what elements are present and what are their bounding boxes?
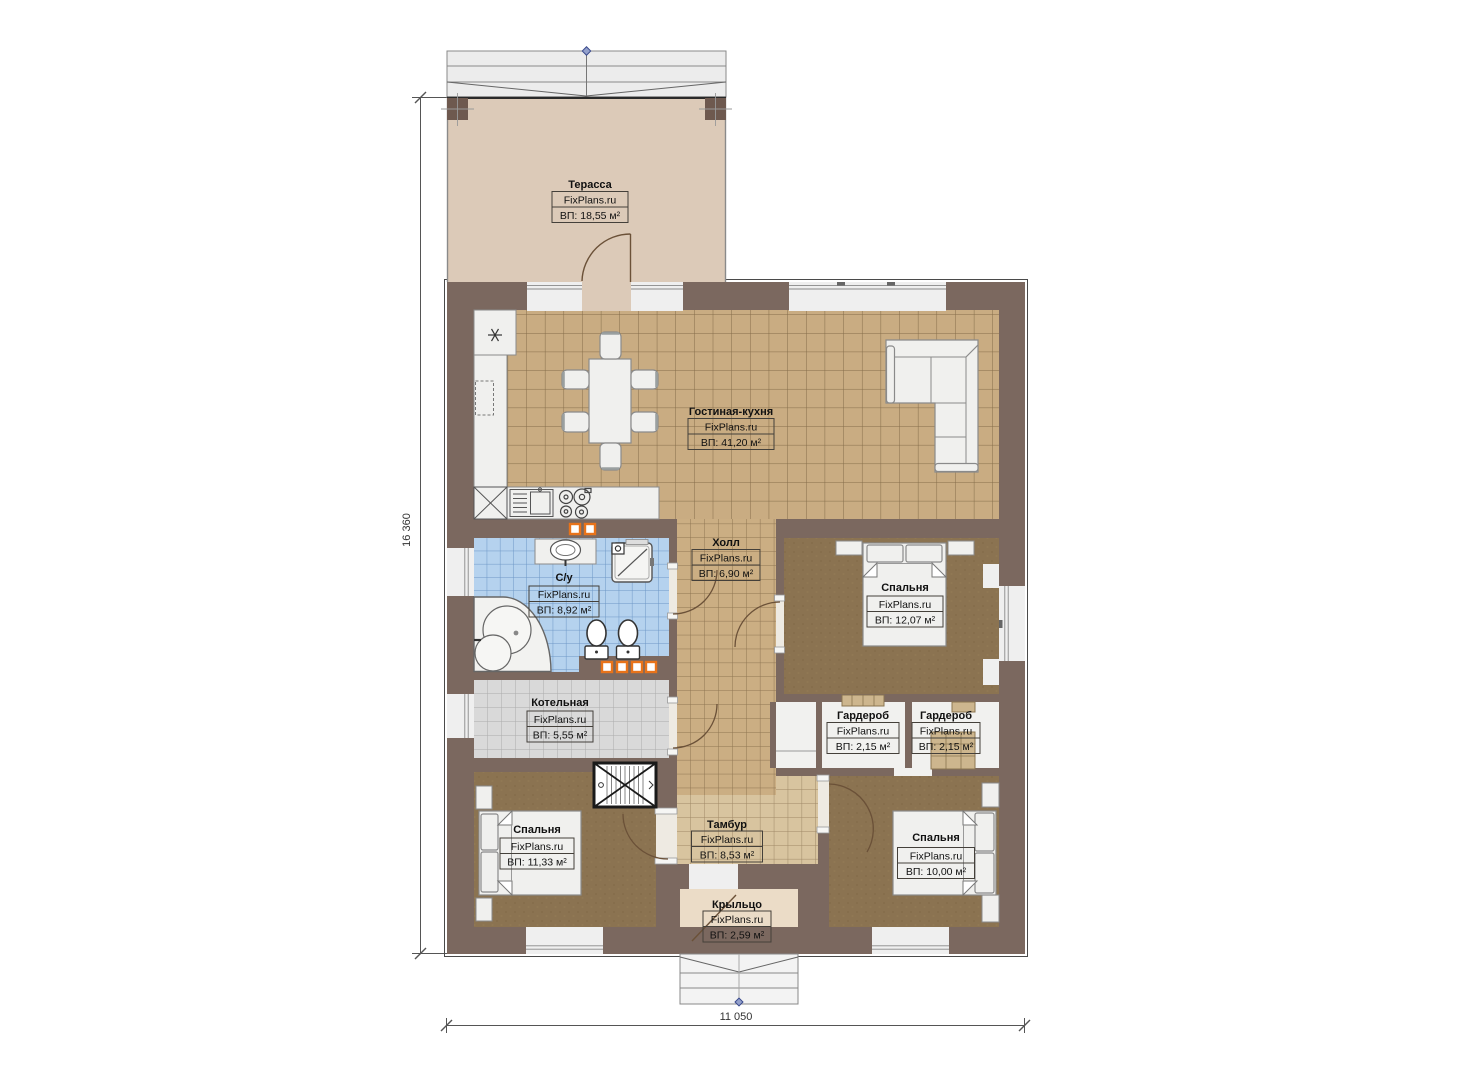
svg-text:ВП: 8,92 м²: ВП: 8,92 м² <box>537 605 592 617</box>
svg-text:FixPlans.ru: FixPlans.ru <box>920 726 973 738</box>
svg-text:ВП: 2,15 м²: ВП: 2,15 м² <box>919 741 974 753</box>
svg-text:ВП: 11,33 м²: ВП: 11,33 м² <box>507 857 567 869</box>
svg-text:Крыльцо: Крыльцо <box>712 899 762 911</box>
svg-text:16 360: 16 360 <box>401 513 413 547</box>
svg-text:Котельная: Котельная <box>531 697 589 709</box>
svg-text:FixPlans.ru: FixPlans.ru <box>538 589 591 601</box>
svg-text:ВП: 2,15 м²: ВП: 2,15 м² <box>836 741 891 753</box>
svg-text:FixPlans.ru: FixPlans.ru <box>711 914 764 926</box>
svg-text:FixPlans.ru: FixPlans.ru <box>700 553 753 565</box>
svg-text:Спальня: Спальня <box>912 832 960 844</box>
svg-text:ВП: 2,59 м²: ВП: 2,59 м² <box>710 930 765 942</box>
svg-text:FixPlans.ru: FixPlans.ru <box>534 714 587 726</box>
svg-text:С/у: С/у <box>555 572 573 584</box>
svg-text:Спальня: Спальня <box>513 824 561 836</box>
svg-text:FixPlans.ru: FixPlans.ru <box>564 195 617 207</box>
svg-text:ВП: 12,07 м²: ВП: 12,07 м² <box>875 615 936 627</box>
svg-text:11 050: 11 050 <box>720 1011 753 1023</box>
svg-text:FixPlans.ru: FixPlans.ru <box>837 726 890 738</box>
svg-text:ВП: 5,55 м²: ВП: 5,55 м² <box>533 730 588 742</box>
svg-text:FixPlans.ru: FixPlans.ru <box>701 834 754 846</box>
svg-text:FixPlans.ru: FixPlans.ru <box>511 841 564 853</box>
svg-text:ВП: 10,00 м²: ВП: 10,00 м² <box>906 866 967 878</box>
svg-text:ВП: 18,55 м²: ВП: 18,55 м² <box>560 210 621 222</box>
svg-text:ВП: 8,53 м²: ВП: 8,53 м² <box>700 850 755 862</box>
svg-text:Терасса: Терасса <box>568 179 612 191</box>
svg-text:FixPlans.ru: FixPlans.ru <box>910 851 963 863</box>
svg-text:ВП: 41,20 м²: ВП: 41,20 м² <box>701 437 762 449</box>
svg-text:FixPlans.ru: FixPlans.ru <box>879 599 932 611</box>
svg-text:Гостиная-кухня: Гостиная-кухня <box>689 406 773 418</box>
svg-text:Гардероб: Гардероб <box>837 710 889 722</box>
svg-text:Спальня: Спальня <box>881 582 929 594</box>
svg-text:Холл: Холл <box>712 537 740 549</box>
svg-text:Гардероб: Гардероб <box>920 710 972 722</box>
svg-text:Тамбур: Тамбур <box>707 819 747 831</box>
svg-text:FixPlans.ru: FixPlans.ru <box>705 422 758 434</box>
svg-text:ВП: 6,90 м²: ВП: 6,90 м² <box>699 568 754 580</box>
